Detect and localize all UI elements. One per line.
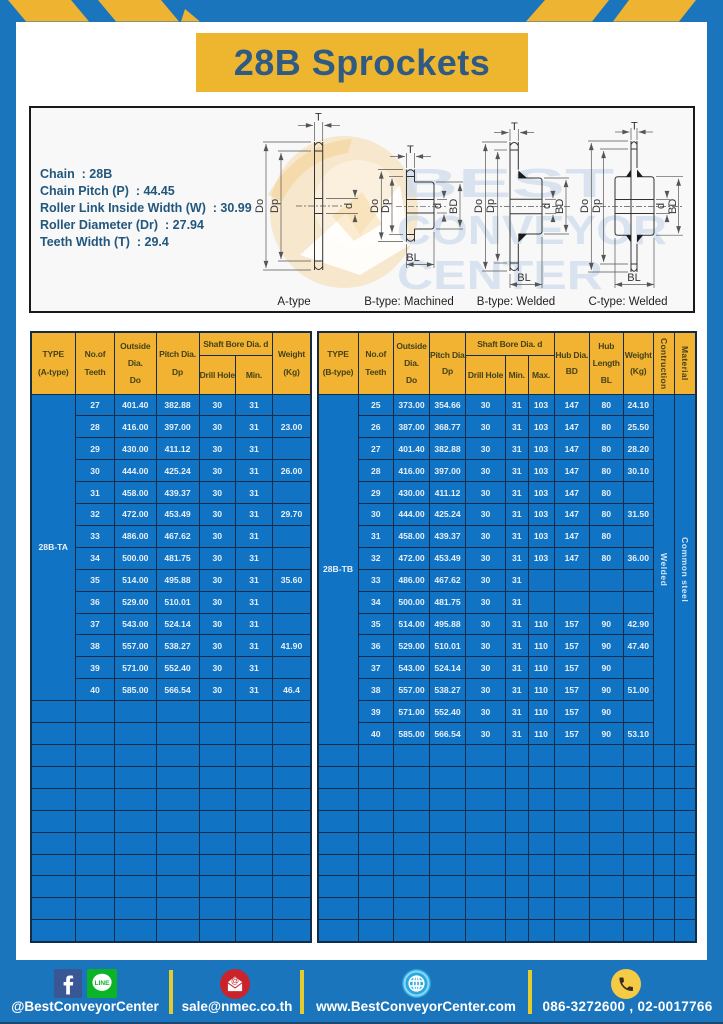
svg-text:BD: BD <box>667 199 679 214</box>
svg-text:Do: Do <box>473 199 485 213</box>
svg-text:@: @ <box>231 976 239 985</box>
svg-text:BL: BL <box>406 252 419 264</box>
svg-text:BL: BL <box>517 272 530 284</box>
svg-text:d: d <box>541 203 553 209</box>
svg-text:Teeth Width (T) : 29.4: Teeth Width (T) : 29.4 <box>40 235 169 249</box>
svg-text:Chain Pitch (P) : 44.45: Chain Pitch (P) : 44.45 <box>40 184 175 198</box>
svg-text:Do: Do <box>579 199 591 213</box>
svg-text:Dp: Dp <box>591 199 603 213</box>
svg-text:d: d <box>655 203 667 209</box>
svg-text:Chain : 28B: Chain : 28B <box>40 167 112 181</box>
svg-text:d: d <box>343 203 355 209</box>
svg-text:Dp: Dp <box>485 199 497 213</box>
svg-text:T: T <box>511 121 518 133</box>
svg-text:LINE: LINE <box>95 980 110 987</box>
svg-text:T: T <box>315 112 322 124</box>
svg-text:B-type: Machined: B-type: Machined <box>364 296 454 308</box>
svg-text:Do: Do <box>254 199 266 213</box>
svg-text:BD: BD <box>554 199 566 214</box>
svg-text:A-type: A-type <box>277 296 310 308</box>
svg-text:Roller Diameter (Dr) : 27.94: Roller Diameter (Dr) : 27.94 <box>40 218 204 232</box>
svg-text:d: d <box>432 203 444 209</box>
svg-text:Dp: Dp <box>269 199 281 213</box>
svg-text:B-type: Welded: B-type: Welded <box>477 296 555 308</box>
svg-text:C-type: Welded: C-type: Welded <box>588 296 667 308</box>
svg-text:BD: BD <box>448 199 460 214</box>
svg-text:BL: BL <box>627 272 640 284</box>
svg-text:Roller Link Inside Width (W): Roller Link Inside Width (W) : 30.99 <box>40 201 252 215</box>
svg-text:Dp: Dp <box>380 199 392 213</box>
svg-text:T: T <box>631 121 638 133</box>
svg-text:CENTER: CENTER <box>397 252 603 298</box>
svg-text:T: T <box>407 144 414 156</box>
